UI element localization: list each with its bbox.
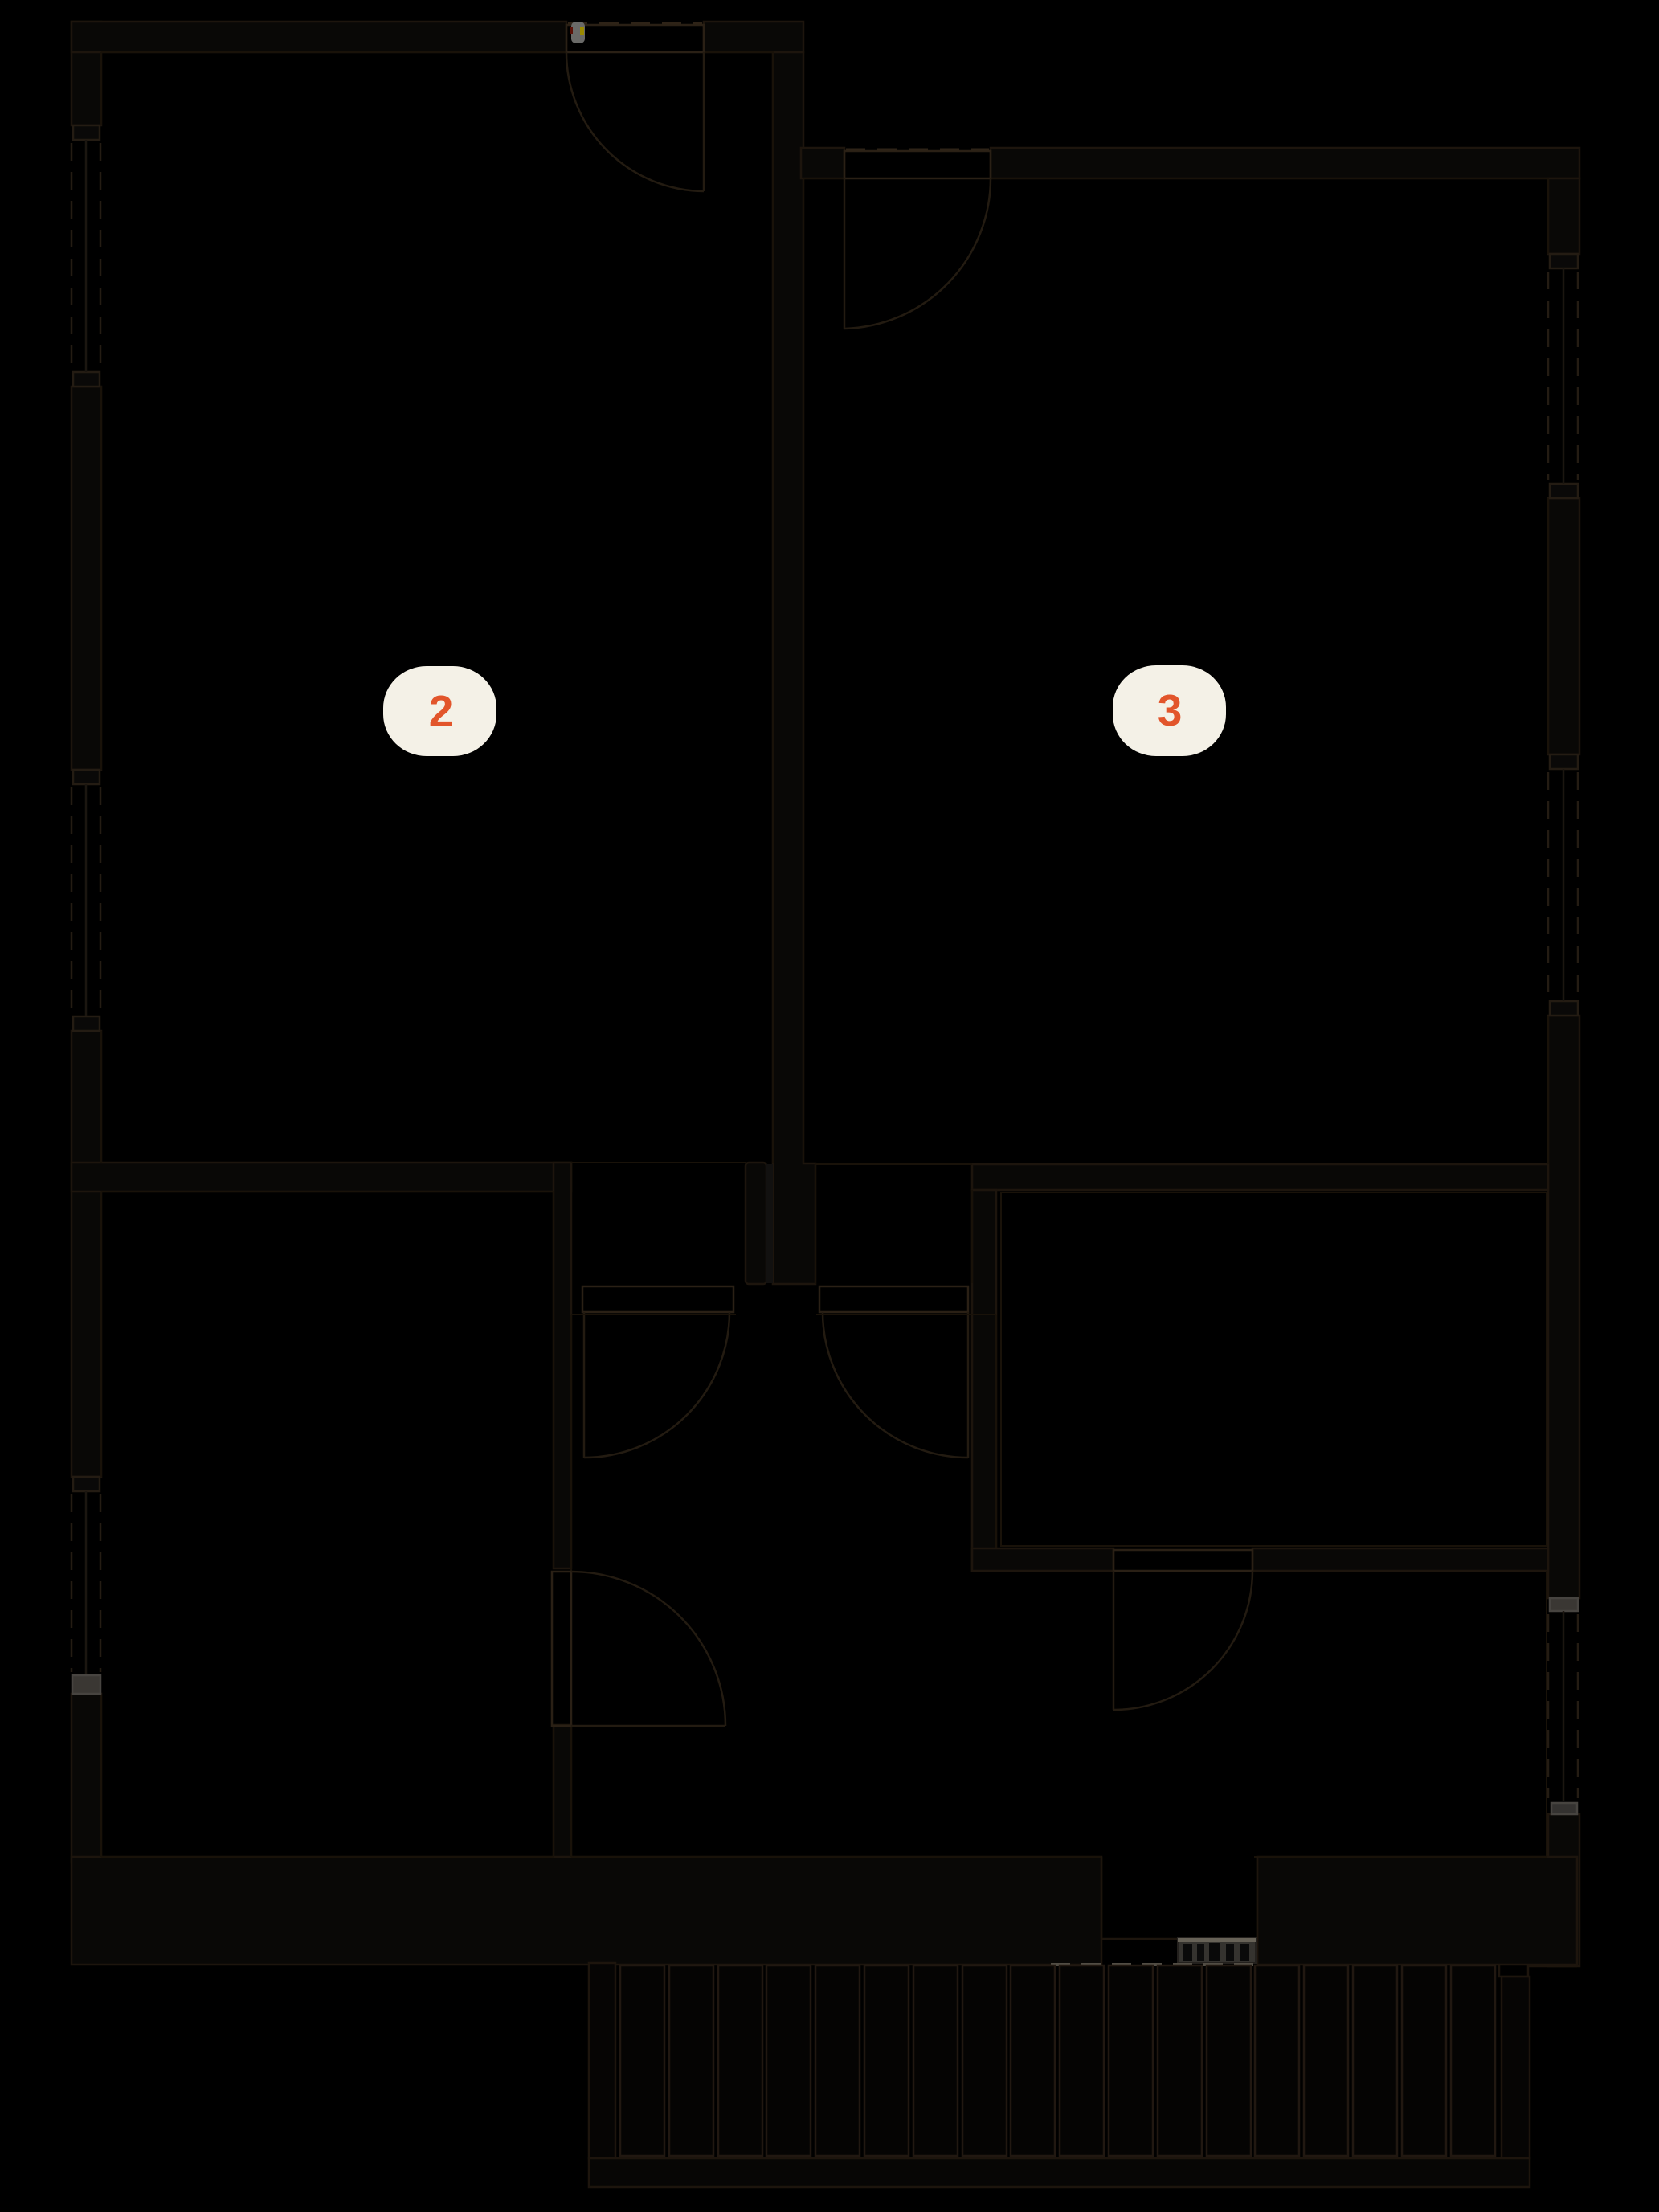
svg-text:2: 2 [429, 686, 454, 736]
svg-text:3: 3 [1158, 685, 1183, 735]
